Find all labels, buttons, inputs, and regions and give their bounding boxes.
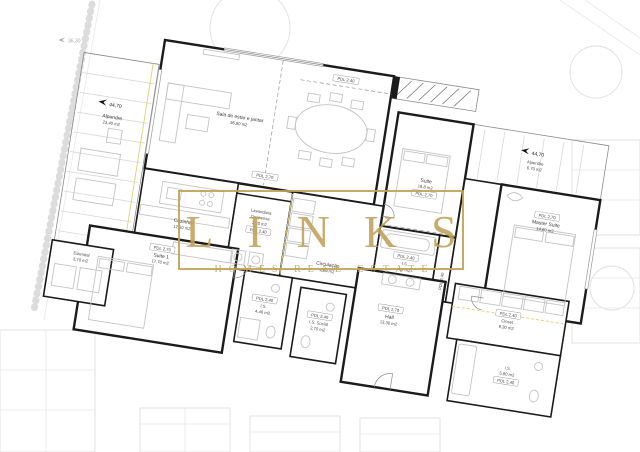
- tree-icon: [570, 46, 622, 98]
- links-watermark: LINKS HOMES REAL ESTATE: [178, 190, 464, 270]
- neighbor-unit-left: [0, 330, 95, 452]
- room-is-social: [290, 287, 346, 363]
- tree-icon: [590, 266, 634, 310]
- level-value: 44,70: [531, 151, 545, 159]
- outdoor-sofa: [78, 148, 121, 176]
- links-brand-logo: LINKS: [185, 209, 490, 255]
- neighbor-unit-bottom: [140, 408, 440, 452]
- label-alpendre-left: 44,70 Alpendre 23,40 m2: [95, 98, 125, 127]
- level-marker-icon: [58, 38, 65, 43]
- links-tagline: HOMES REAL ESTATE: [180, 264, 469, 275]
- level-marker-icon: [98, 98, 107, 105]
- site-level-topleft: 36,30: [58, 38, 81, 45]
- level-value: 44,70: [109, 102, 123, 110]
- outdoor-sofa: [73, 178, 116, 206]
- site-level-label: 36,30: [68, 39, 81, 45]
- room-name: I.S.: [260, 303, 267, 309]
- entry-steps: [391, 76, 479, 111]
- room-hall: [341, 268, 446, 395]
- floor-plan-page: 36,30 39,50 41,50: [0, 0, 640, 452]
- room-area: 6,70 m2: [527, 165, 543, 172]
- room-estendal: [43, 240, 113, 306]
- outdoor-table: [106, 128, 122, 144]
- room-name: I.S.: [504, 365, 511, 371]
